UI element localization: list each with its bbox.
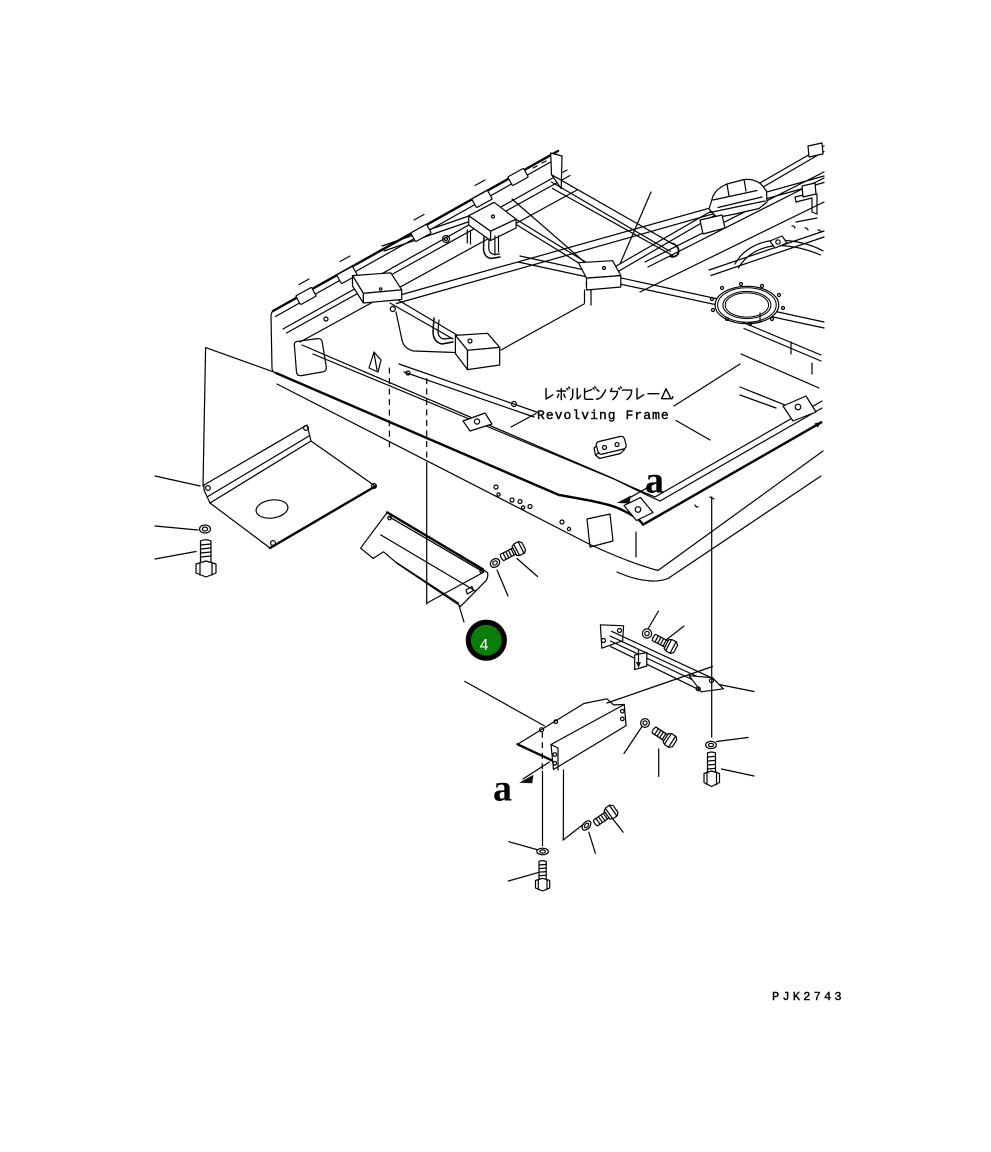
svg-text:a: a xyxy=(645,460,664,502)
svg-text:Revolving Frame: Revolving Frame xyxy=(537,408,670,423)
svg-text:4: 4 xyxy=(480,637,489,654)
svg-text:PJK2743: PJK2743 xyxy=(772,990,845,1004)
svg-text:a: a xyxy=(493,768,512,810)
